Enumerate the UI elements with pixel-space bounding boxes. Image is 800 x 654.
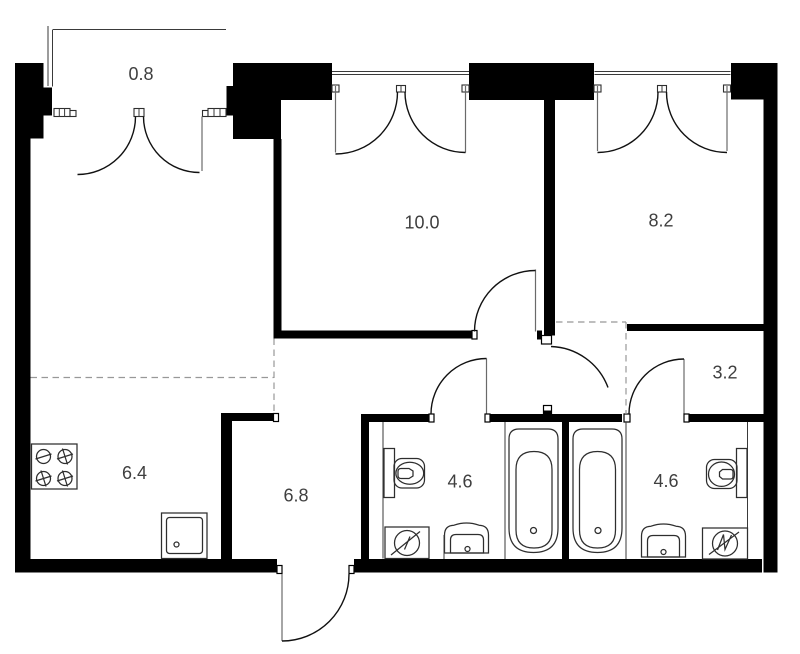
svg-text:3.2: 3.2 (712, 362, 737, 382)
svg-text:8.2: 8.2 (648, 211, 673, 231)
svg-text:6.4: 6.4 (122, 463, 147, 483)
svg-text:4.6: 4.6 (447, 472, 472, 492)
svg-text:6.8: 6.8 (283, 486, 308, 506)
svg-text:10.0: 10.0 (404, 212, 439, 232)
svg-text:4.6: 4.6 (653, 471, 678, 491)
svg-text:0.8: 0.8 (128, 64, 153, 84)
